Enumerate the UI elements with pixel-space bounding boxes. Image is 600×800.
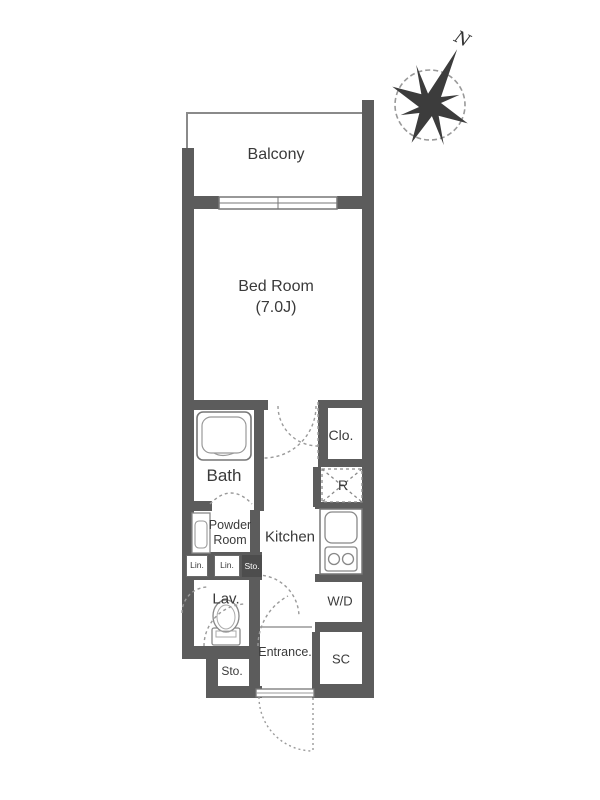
linen-mid-label: Lin.: [220, 561, 234, 571]
powder-room-label-line1: Powder: [209, 518, 251, 532]
entrance-hall-door-arc: [258, 596, 288, 646]
bedroom-size-label: (7.0J): [256, 299, 297, 317]
storage-upper-label: Sto.: [244, 561, 259, 571]
plan-fixtures: N: [0, 0, 600, 800]
compass-north-label: N: [450, 27, 474, 52]
refrigerator-label: R: [338, 477, 348, 493]
entrance-label: Entrance.: [258, 645, 312, 659]
storage-lower-label: Sto.: [221, 665, 242, 679]
washbasin-icon: [192, 513, 210, 553]
storage-upper-box: Sto.: [242, 555, 262, 577]
washer-dryer-label: W/D: [327, 595, 352, 610]
kitchen-label: Kitchen: [265, 528, 315, 545]
balcony-label: Balcony: [248, 146, 305, 164]
front-door-threshold: [256, 689, 314, 697]
sliding-window-icon: [219, 197, 337, 209]
bath-door-arc: [210, 493, 252, 504]
bath-label: Bath: [207, 466, 242, 486]
front-door-arc: [259, 697, 313, 751]
shoe-closet-label: SC: [332, 653, 350, 668]
front-door-swing: [259, 697, 313, 751]
kitchen-counter-icon: [320, 509, 362, 574]
powder-door-arc: [257, 575, 299, 617]
lav-cabinet-arc: [182, 587, 208, 613]
linen-left-label: Lin.: [190, 561, 204, 571]
bathtub-icon: [197, 412, 251, 460]
powder-room-label-line2: Room: [213, 533, 246, 547]
compass-icon: N: [374, 12, 504, 161]
bedroom-door-arc: [264, 406, 316, 458]
floor-plan: N Sto. Balcony Bed Room (7.0J) Bath Clo.…: [0, 0, 600, 800]
bedroom-label: Bed Room: [238, 278, 314, 296]
closet-label: Clo.: [329, 427, 354, 443]
lavatory-label: Lav.: [212, 590, 239, 607]
